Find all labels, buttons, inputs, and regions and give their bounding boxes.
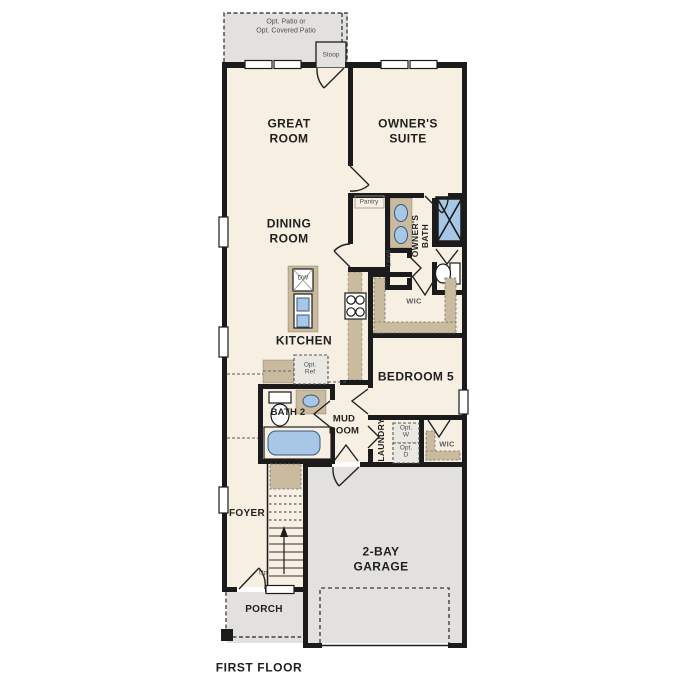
wic2-shelf (426, 451, 460, 460)
vanity-sink (395, 205, 408, 222)
room-label-bath2: BATH 2 (271, 407, 306, 419)
sink-basin (297, 315, 309, 327)
floor-title: FIRST FLOOR (216, 661, 303, 676)
window (459, 390, 468, 414)
room-label-foyer: FOYER (229, 508, 265, 520)
window (219, 327, 228, 357)
room-label-laundry-wic: WIC (439, 439, 454, 448)
interior-floors (227, 68, 462, 643)
room-label-pantry: Pantry (360, 198, 379, 205)
porch-post (221, 629, 233, 641)
window (219, 217, 228, 247)
room-label-owners-suite: OWNER'S SUITE (378, 116, 438, 145)
room-label-linen: Linen (386, 249, 395, 266)
opt-ref-label: Opt. Ref (304, 362, 316, 377)
room-label-kitchen: KITCHEN (276, 334, 332, 349)
understair-closet (270, 464, 301, 489)
burner (356, 308, 364, 316)
room-label-porch: PORCH (245, 604, 283, 616)
burner (347, 308, 355, 316)
up-label: Up (259, 569, 267, 576)
opt-washer-label: Opt. W (400, 425, 412, 440)
room-label-bedroom5: BEDROOM 5 (378, 370, 454, 385)
room-label-owners-bath: OWNER'S BATH (411, 215, 431, 257)
room-label-great-room: GREAT ROOM (267, 116, 310, 145)
window (410, 61, 437, 69)
room-label-mud-room: MUD ROOM (329, 413, 359, 436)
window (381, 61, 408, 69)
bathtub (268, 431, 320, 455)
opt-patio-label: Opt. Patio or Opt. Covered Patio (256, 18, 316, 37)
room-label-dining-room: DINING ROOM (267, 216, 311, 245)
window (274, 61, 301, 69)
window (245, 61, 272, 69)
room-label-laundry: LAUNDRY (377, 418, 387, 461)
wic-shelf (445, 278, 456, 322)
sink-basin (297, 298, 309, 311)
burner (356, 296, 364, 304)
porch-area (227, 592, 303, 643)
wic-shelf (374, 322, 456, 333)
room-label-owners-wic: WIC (406, 296, 421, 305)
kitchen-counter (348, 272, 362, 380)
burner (347, 296, 355, 304)
floor-plan-svg (0, 0, 687, 687)
room-label-garage: 2-BAY GARAGE (353, 544, 408, 573)
dishwasher-label: DW (298, 274, 309, 281)
entry-sidelight-window (266, 586, 294, 594)
stoop-label: Stoop (323, 51, 340, 58)
bath2-sink (303, 395, 319, 407)
window (219, 487, 228, 513)
toilet-tank (269, 392, 291, 403)
floor-plan: Opt. Patio or Opt. Covered Patio Stoop G… (0, 0, 687, 687)
opt-dryer-label: Opt. D (400, 445, 412, 460)
vanity-sink (395, 227, 408, 244)
